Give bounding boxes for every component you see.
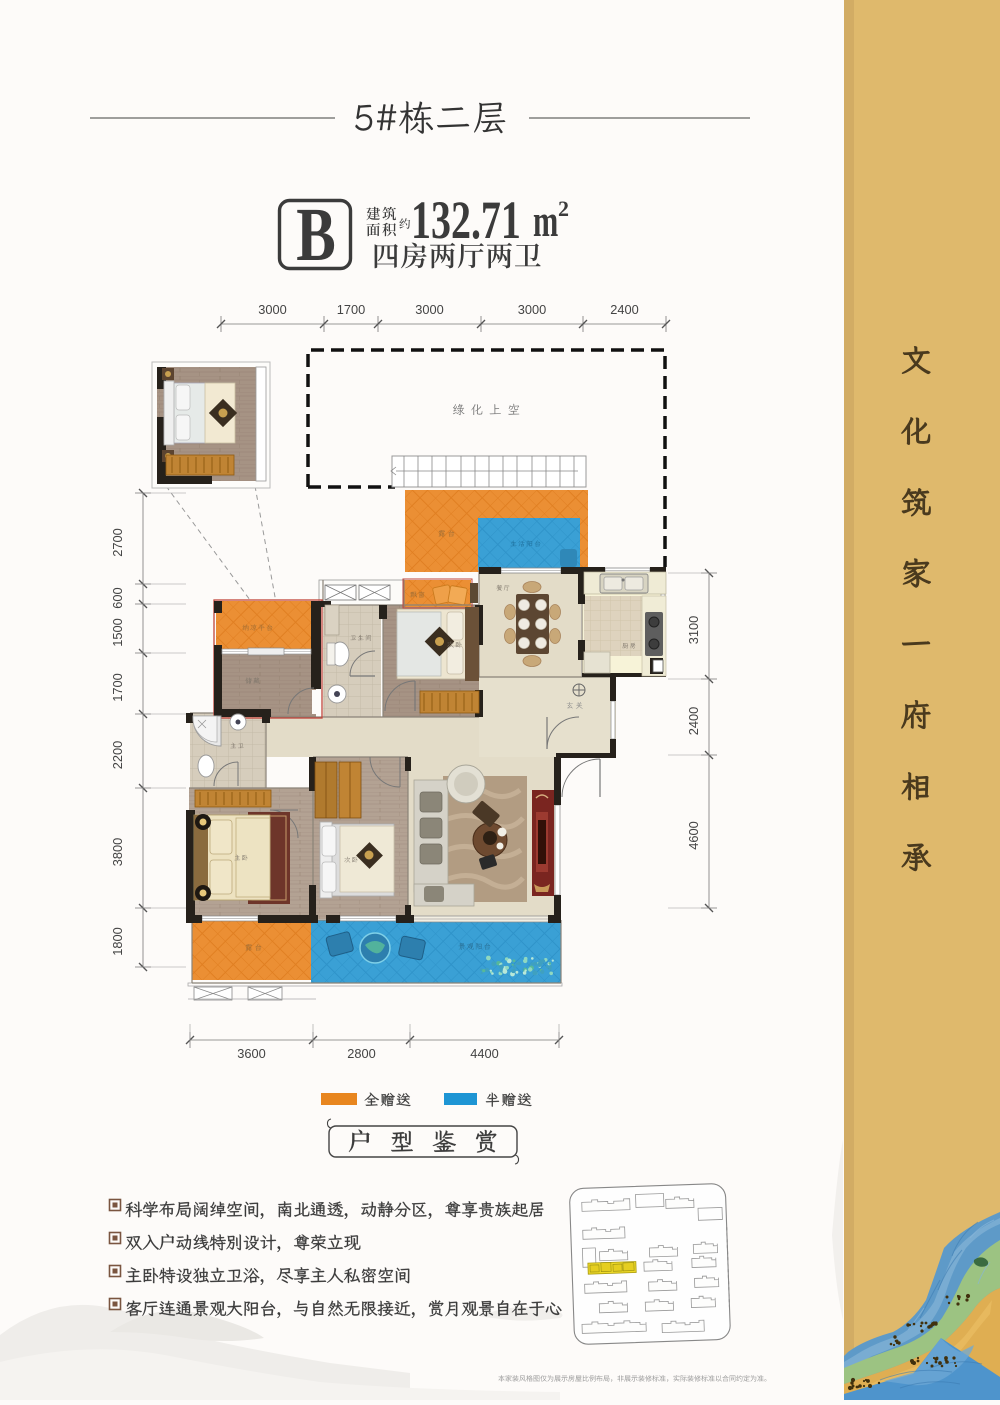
svg-text:3800: 3800 [110, 838, 125, 866]
svg-text:1500: 1500 [110, 618, 125, 646]
svg-text:600: 600 [110, 587, 125, 608]
svg-text:2400: 2400 [686, 707, 701, 735]
svg-text:132.71: 132.71 [411, 191, 521, 250]
svg-text:1800: 1800 [110, 927, 125, 955]
svg-text:B: B [296, 192, 336, 277]
svg-text:3000: 3000 [258, 302, 286, 317]
svg-text:3000: 3000 [518, 302, 546, 317]
svg-text:1700: 1700 [110, 673, 125, 701]
svg-text:4600: 4600 [686, 821, 701, 849]
svg-text:2: 2 [558, 196, 569, 221]
svg-text:1700: 1700 [337, 302, 365, 317]
svg-text:2700: 2700 [110, 528, 125, 556]
svg-text:2800: 2800 [347, 1046, 375, 1061]
svg-text:m: m [533, 196, 558, 247]
svg-text:4400: 4400 [470, 1046, 498, 1061]
svg-text:3100: 3100 [686, 616, 701, 644]
svg-text:3600: 3600 [237, 1046, 265, 1061]
svg-text:3000: 3000 [415, 302, 443, 317]
svg-text:2200: 2200 [110, 741, 125, 769]
svg-text:2400: 2400 [610, 302, 638, 317]
